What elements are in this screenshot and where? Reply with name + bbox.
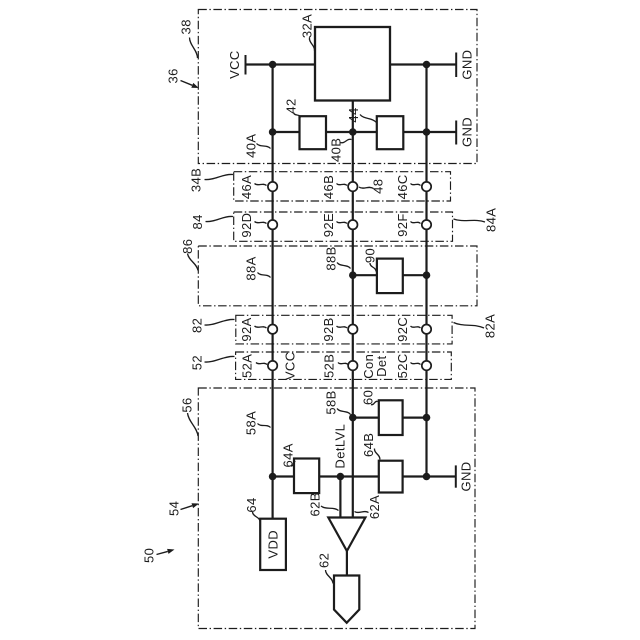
- svg-text:52C: 52C: [395, 353, 410, 378]
- svg-text:54: 54: [166, 501, 181, 516]
- svg-text:34B: 34B: [188, 168, 203, 192]
- svg-text:GND: GND: [459, 50, 474, 80]
- svg-text:40B: 40B: [329, 138, 344, 162]
- svg-text:84: 84: [190, 214, 205, 229]
- svg-text:56: 56: [180, 397, 195, 412]
- svg-text:46B: 46B: [321, 175, 336, 199]
- svg-text:92D: 92D: [239, 213, 254, 238]
- svg-text:GND: GND: [459, 117, 474, 147]
- svg-text:92F: 92F: [395, 213, 410, 237]
- svg-text:88B: 88B: [323, 246, 338, 270]
- svg-text:VCC: VCC: [282, 351, 297, 380]
- svg-text:VDD: VDD: [266, 530, 281, 559]
- svg-text:92A: 92A: [239, 317, 254, 341]
- svg-text:82A: 82A: [482, 314, 497, 338]
- svg-text:64B: 64B: [361, 433, 376, 457]
- svg-text:92E: 92E: [321, 213, 336, 237]
- svg-text:64: 64: [244, 497, 259, 512]
- svg-text:92B: 92B: [321, 317, 336, 341]
- svg-text:36: 36: [165, 68, 180, 83]
- svg-text:46A: 46A: [239, 175, 254, 199]
- svg-text:Det: Det: [374, 355, 389, 376]
- svg-text:42: 42: [284, 98, 299, 113]
- svg-text:62: 62: [317, 553, 332, 568]
- svg-text:62B: 62B: [307, 492, 322, 516]
- svg-text:90: 90: [363, 248, 378, 263]
- svg-text:62A: 62A: [367, 495, 382, 519]
- svg-text:88A: 88A: [243, 256, 258, 280]
- svg-text:VCC: VCC: [227, 50, 242, 79]
- svg-text:38: 38: [179, 19, 194, 34]
- svg-text:52: 52: [189, 355, 204, 370]
- svg-text:82: 82: [189, 318, 204, 333]
- svg-text:DetLVL: DetLVL: [332, 424, 347, 469]
- svg-text:GND: GND: [459, 461, 474, 491]
- svg-text:84A: 84A: [484, 208, 499, 232]
- svg-text:86: 86: [180, 239, 195, 254]
- svg-text:46C: 46C: [395, 174, 410, 199]
- svg-text:60: 60: [361, 390, 376, 405]
- svg-text:48: 48: [370, 179, 385, 194]
- svg-text:58B: 58B: [324, 390, 339, 414]
- svg-text:92C: 92C: [395, 317, 410, 342]
- svg-text:58A: 58A: [243, 411, 258, 435]
- svg-text:52B: 52B: [322, 354, 337, 378]
- svg-text:52A: 52A: [239, 354, 254, 378]
- svg-text:40A: 40A: [243, 134, 258, 158]
- svg-text:32A: 32A: [300, 14, 315, 38]
- svg-text:50: 50: [142, 548, 157, 563]
